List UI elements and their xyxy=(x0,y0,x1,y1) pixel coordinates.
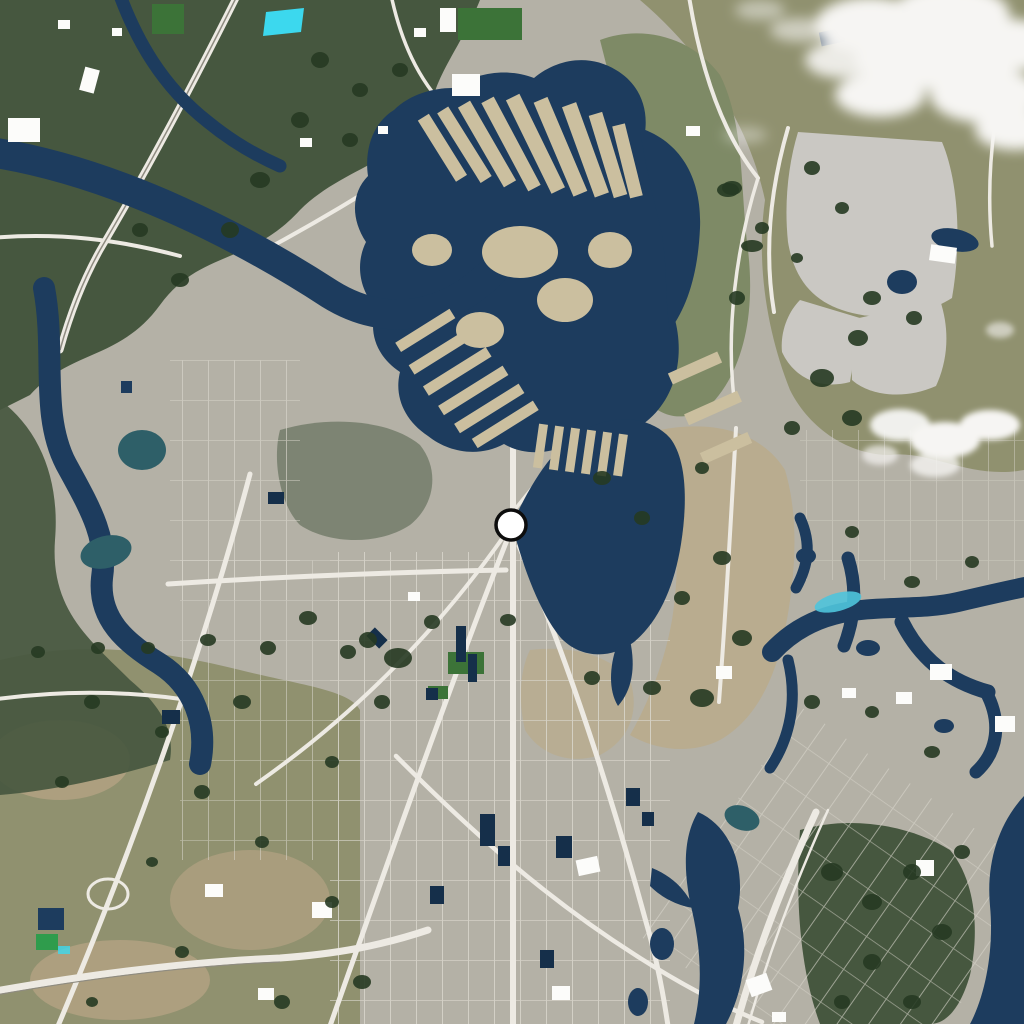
sw-pool xyxy=(38,908,64,930)
cyan-pool xyxy=(263,8,304,36)
location-marker[interactable] xyxy=(496,510,526,540)
wetland-lake xyxy=(118,430,166,470)
satellite-map-canvas[interactable] xyxy=(0,0,1024,1024)
left-park-blob xyxy=(277,422,432,540)
satellite-map-view[interactable] xyxy=(0,0,1024,1024)
sports-field xyxy=(36,934,58,950)
industrial-pad xyxy=(786,132,957,317)
